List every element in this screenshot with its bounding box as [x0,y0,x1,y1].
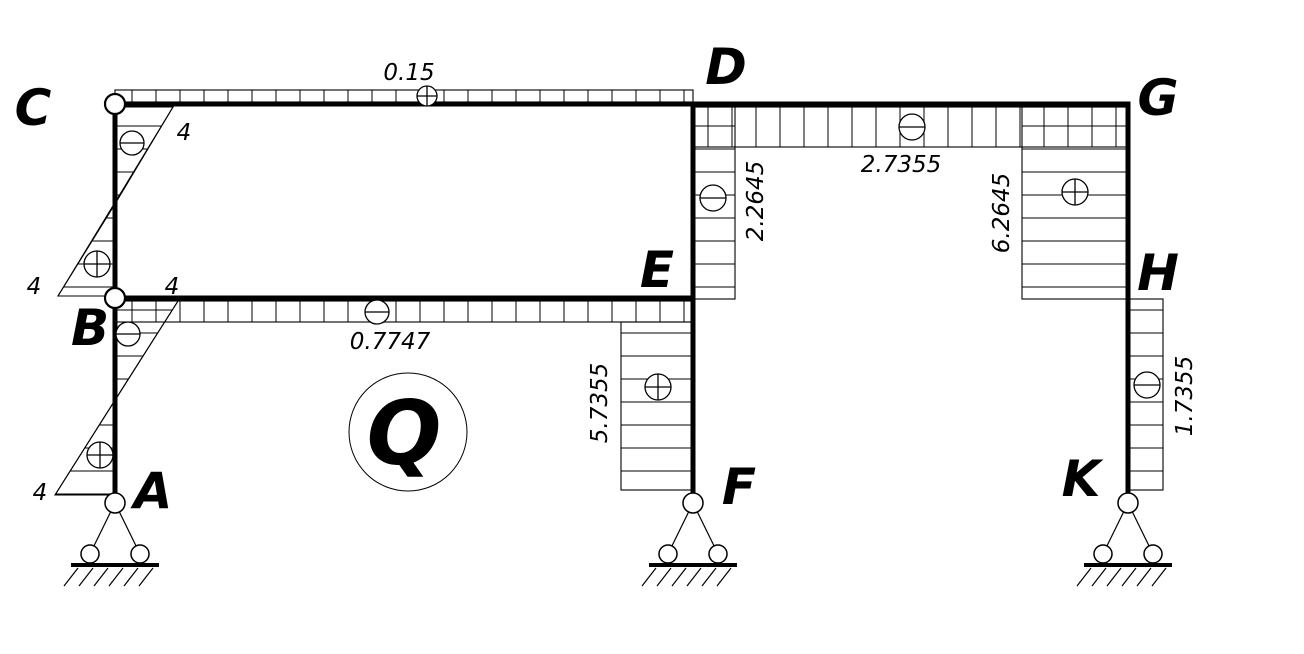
node-label-H: H [1137,244,1179,302]
ground-hatch [1077,568,1166,586]
ground-hatch [64,568,153,586]
minus-sign-icon [700,185,726,211]
support-pin-icon [1118,493,1138,513]
minus-sign-icon [899,114,925,140]
drawing-canvas: Q C B A D E F G H K 0.15 2.7355 0.7747 4… [0,0,1304,654]
value-column-BA-bottom: 4 [33,480,48,506]
minus-sign-icon [120,131,144,155]
node-label-F: F [722,458,756,516]
value-column-DE: 2.2645 [743,161,769,241]
node-label-G: G [1137,69,1178,127]
plus-sign-icon [645,374,671,400]
support-pin-icon [683,493,703,513]
plus-sign-icon [417,86,437,106]
hinge-C [105,94,125,114]
value-column-CB-top: 4 [177,120,192,146]
value-column-EF: 5.7355 [587,363,613,443]
value-column-BA-top: 4 [165,274,180,300]
plus-sign-icon [87,442,113,468]
minus-sign-icon [116,322,140,346]
shear-band-beam-CD [115,90,693,102]
plus-sign-icon [1062,179,1088,205]
node-label-C: C [15,79,52,137]
shear-force-diagram: Q C B A D E F G H K 0.15 2.7355 0.7747 4… [0,0,1304,654]
support-pin-icon [105,493,125,513]
node-label-E: E [640,241,674,299]
value-beam-DG: 2.7355 [861,152,941,178]
plus-sign-icon [84,251,110,277]
node-label-A: A [130,462,173,520]
minus-sign-icon [365,300,389,324]
node-label-B: B [71,299,109,357]
value-beam-CD: 0.15 [383,60,434,86]
shear-band-column-EF [621,322,693,490]
value-beam-BE: 0.7747 [350,329,431,355]
shear-band-beam-BE [115,301,693,322]
minus-sign-icon [1134,372,1160,398]
value-column-CB-bottom: 4 [27,274,42,300]
value-column-HK: 1.7355 [1172,356,1198,436]
diagram-name-label: Q [367,382,442,485]
value-column-GH: 6.2645 [989,173,1015,253]
node-label-D: D [705,38,747,96]
node-label-K: K [1062,450,1104,508]
ground-hatch [642,568,731,586]
